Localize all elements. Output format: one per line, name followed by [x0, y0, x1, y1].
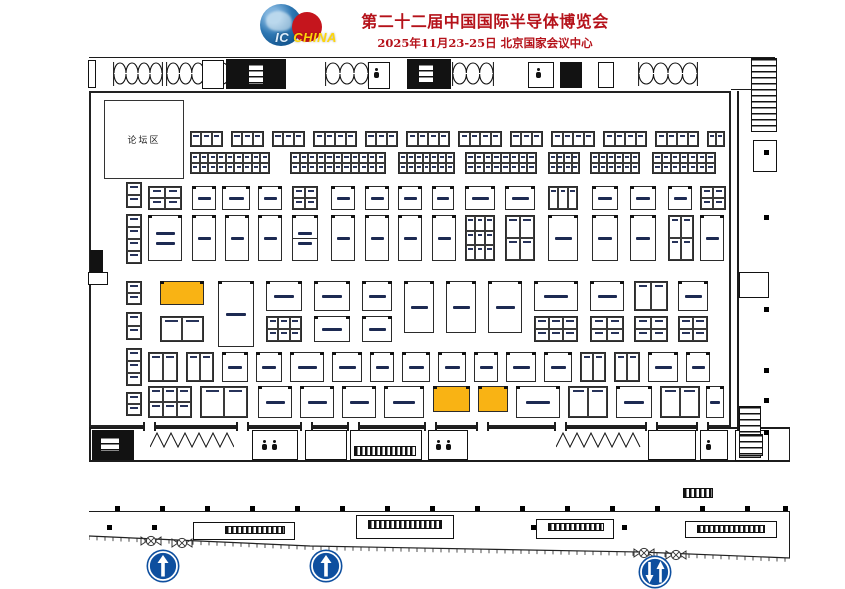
booth-cell [260, 163, 269, 173]
facility-room [739, 272, 769, 298]
booth [544, 352, 572, 382]
zigzag-barrier-icon [556, 432, 644, 449]
booth-cell [359, 163, 368, 173]
booth-cell [163, 387, 177, 402]
booth [592, 186, 618, 210]
booth-cell [351, 163, 360, 173]
booth [314, 316, 350, 342]
booth [648, 352, 678, 382]
booth-cell [127, 393, 141, 404]
booth [548, 215, 578, 261]
booth-cell [300, 153, 309, 163]
entrance-doors-icon [113, 60, 163, 88]
booth-cell [342, 163, 351, 173]
booth-cells [580, 352, 606, 382]
booth-cell [535, 317, 549, 329]
booth-cell [127, 326, 141, 339]
restroom-person-icon [446, 440, 451, 450]
outdoor-column [430, 506, 435, 511]
booth-cell [520, 216, 534, 238]
door-tick [554, 422, 556, 431]
booth [402, 352, 430, 382]
booth-cell [260, 153, 269, 163]
entrance-doors-icon [638, 60, 698, 88]
booth-cell [521, 132, 531, 146]
booth [506, 352, 536, 382]
booth-cell [127, 239, 141, 251]
booth-cell [506, 238, 520, 260]
booth-cell [680, 387, 699, 417]
outdoor-column [340, 506, 345, 511]
booth [222, 186, 250, 210]
booth-cell [334, 163, 343, 173]
outdoor-column [610, 506, 615, 511]
booth-cell [485, 216, 494, 231]
booth-cell [706, 153, 715, 163]
booth-cell [510, 153, 519, 163]
booth-cell [232, 132, 242, 146]
booth-cell [697, 163, 706, 173]
wall-strip-booths [126, 312, 142, 340]
booth [432, 186, 454, 210]
booth-label-text [551, 366, 566, 369]
booth [258, 386, 292, 418]
booth-label-text [156, 242, 175, 245]
booth-cell [149, 198, 165, 209]
outdoor-column [205, 506, 210, 511]
booth-cell [234, 153, 243, 163]
door-tick [487, 422, 489, 431]
booth-cell [563, 329, 577, 341]
booth-cell [252, 153, 261, 163]
booth-cell [662, 153, 671, 163]
booth-cell [635, 317, 651, 329]
booth [516, 386, 560, 418]
booth-cells [160, 316, 204, 342]
booth-cell [688, 163, 697, 173]
wall-strip-booths [126, 281, 142, 305]
booth-cell [466, 153, 475, 163]
booth-label-text [710, 401, 720, 404]
booth-cell [669, 216, 681, 238]
booth-label-text [438, 237, 451, 240]
hatched-platform [683, 488, 713, 498]
booth-label-text [371, 237, 384, 240]
wall-strip-booths [126, 182, 142, 208]
booth-cell [127, 215, 141, 227]
outdoor-column [745, 506, 750, 511]
booth [616, 386, 652, 418]
booth-cell [688, 153, 697, 163]
booth-cells [465, 152, 537, 174]
logo-text-china: CHINA [293, 30, 337, 45]
booth [678, 281, 708, 311]
booth [266, 281, 302, 311]
booth-label-text [411, 306, 428, 309]
facility-room [700, 430, 728, 460]
wall-line [89, 57, 775, 58]
wall-strip-booths [126, 392, 142, 416]
booth-cell [593, 353, 605, 381]
door-tick [347, 422, 349, 431]
hatched-platform [354, 446, 416, 456]
booth-cell [581, 353, 593, 381]
booth-cells [290, 152, 386, 174]
booth [706, 386, 724, 418]
booth-cell [680, 153, 689, 163]
booth-cell [212, 132, 222, 146]
booth-cell [475, 245, 484, 260]
facility-room [305, 430, 347, 460]
door-tick [311, 422, 313, 431]
booth-label-text [636, 197, 650, 200]
booth-cells [190, 152, 270, 174]
booth-cell [127, 183, 141, 195]
booth-cell [484, 163, 493, 173]
booth-cells [231, 131, 264, 147]
booth [258, 186, 282, 210]
booth-cell [485, 245, 494, 260]
booth-cells [668, 215, 694, 261]
booth-cell [520, 238, 534, 260]
forum-area-label: 论坛区 [127, 133, 160, 146]
booth-label-text [598, 197, 612, 200]
booth-cell [201, 387, 224, 417]
booth-cell [127, 293, 141, 304]
booth [365, 186, 389, 210]
stairs-icon [739, 434, 763, 456]
booth-cells [603, 131, 647, 147]
outdoor-column [783, 506, 788, 511]
booth-cell [165, 187, 181, 198]
booth-cell [519, 163, 528, 173]
booth [668, 186, 692, 210]
door-tick [143, 422, 145, 431]
booth-cell [669, 238, 681, 260]
booth-cell [376, 153, 385, 163]
ahead-only-sign [146, 549, 180, 583]
booth-cell [511, 132, 521, 146]
booth-label-text [322, 295, 342, 298]
booth-cell [491, 132, 502, 146]
booth-cell [651, 282, 667, 310]
door-tick [565, 422, 567, 431]
booth-cell [305, 198, 317, 209]
booth-cell [549, 329, 563, 341]
booth-cells [548, 152, 580, 174]
booth-cell [557, 163, 565, 173]
door-tick [300, 422, 302, 431]
booth-cells [186, 352, 214, 382]
booth-cell [588, 387, 607, 417]
booth-cell [599, 163, 607, 173]
booth [534, 281, 578, 311]
booth-label-text [598, 295, 617, 298]
outdoor-column [385, 506, 390, 511]
booth-label-text [156, 232, 175, 235]
booth-cells [200, 386, 248, 418]
booth-cell [165, 198, 181, 209]
structural-column [764, 215, 769, 220]
booth-cell [563, 317, 577, 329]
booth-label-text [350, 401, 369, 404]
booth-cell [697, 153, 706, 163]
booth [438, 352, 466, 382]
booth-cell [415, 163, 423, 173]
booth-cell [564, 153, 572, 163]
booth-cell [446, 153, 454, 163]
booth-cell [466, 245, 475, 260]
booth-cell [459, 132, 470, 146]
wall-line [89, 511, 790, 512]
booth-label-text [526, 401, 550, 404]
booth-cells [148, 352, 178, 382]
structural-column [764, 150, 769, 155]
booth-cells [700, 186, 726, 210]
booth-cell [290, 329, 301, 341]
booth-cell [519, 153, 528, 163]
booth-cell [127, 251, 141, 263]
stairs-icon [418, 63, 434, 83]
booth-cells [266, 316, 302, 342]
booth-cell [430, 153, 438, 163]
booth-cell [407, 153, 415, 163]
stair-core-block [560, 62, 582, 88]
door-tick [696, 422, 698, 431]
booth-cell [607, 329, 623, 341]
booth-cell [325, 163, 334, 173]
booth-label-text [198, 237, 211, 240]
booth-label-text [437, 197, 449, 200]
facility-room [368, 62, 390, 89]
booth [192, 186, 216, 210]
booth-label-text [369, 295, 386, 298]
booth-cell [278, 317, 289, 329]
booth-cell [243, 163, 252, 173]
booth-cell [283, 132, 293, 146]
booth-cell [359, 153, 368, 163]
booth-cell [208, 163, 217, 173]
booth-cells [272, 131, 305, 147]
entrance-doors-icon [325, 60, 369, 88]
door-tick [247, 422, 249, 431]
restroom-person-icon [262, 440, 267, 450]
booth-cell [294, 132, 304, 146]
booth-cell [591, 329, 607, 341]
booth-cell [127, 361, 141, 373]
booth [258, 215, 282, 261]
booth-label-text [308, 401, 327, 404]
booth-cell [527, 163, 536, 173]
booth-cell [273, 132, 283, 146]
booth-cell [376, 163, 385, 173]
wall-strip-booths [126, 214, 142, 264]
booth-cell [572, 163, 580, 173]
booth-label-text [369, 328, 386, 331]
structural-column [764, 368, 769, 373]
outdoor-column [115, 506, 120, 511]
booth-label-text [409, 366, 424, 369]
booth [225, 215, 249, 261]
booth-cell [625, 132, 636, 146]
booth-cell [308, 163, 317, 173]
booth-cell [267, 317, 278, 329]
booth-cell [706, 163, 715, 173]
booth-cell [635, 282, 651, 310]
booth-cell [127, 227, 141, 239]
facility-room [88, 60, 96, 88]
booth [218, 281, 254, 347]
expo-date-venue: 2025年11月23-25日 北京国家会议中心 [340, 35, 630, 51]
booth-cell [334, 153, 343, 163]
booth-cell [438, 163, 446, 173]
booth-cell [149, 353, 163, 381]
booth-cell [368, 163, 377, 173]
structural-column [764, 307, 769, 312]
facility-room [202, 60, 224, 89]
booth-cells [313, 131, 357, 147]
booth-label-text [404, 237, 417, 240]
booth-cell [623, 153, 631, 163]
booth-cell [423, 153, 431, 163]
booth-cell [568, 187, 577, 209]
booth-cells [678, 316, 708, 342]
booth-cell [708, 132, 716, 146]
booth-cell [470, 132, 481, 146]
booth-cell [127, 282, 141, 293]
booth-cell [661, 387, 680, 417]
booth-cell [466, 216, 475, 231]
booth-cell [242, 132, 252, 146]
booth-cell [291, 153, 300, 163]
booth-cell [407, 132, 418, 146]
booth-cell [127, 404, 141, 415]
booth-cell [415, 153, 423, 163]
booth [398, 215, 422, 261]
booth-cell [149, 387, 163, 402]
booth-cells [148, 386, 192, 418]
restroom-person-icon [536, 68, 541, 78]
outdoor-column [565, 506, 570, 511]
booth-cell [335, 132, 346, 146]
door-tick [424, 422, 426, 431]
booth-cell [651, 317, 667, 329]
entrance-doors-icon [452, 60, 494, 88]
booth-cell [475, 216, 484, 231]
booth-label-text [624, 401, 644, 404]
door-tick [707, 422, 709, 431]
booth-cell [290, 317, 301, 329]
booth-cell [252, 163, 261, 173]
booth-cells [551, 131, 595, 147]
booth-highlight [160, 281, 204, 305]
booth [700, 215, 724, 261]
booth-cell [501, 163, 510, 173]
booth-cell [308, 153, 317, 163]
booth-highlight [478, 386, 508, 412]
booth-cell [693, 317, 707, 329]
booth-cell [701, 187, 713, 198]
booth-cell [607, 163, 615, 173]
booth-cell [564, 163, 572, 173]
booth-label-text [264, 197, 277, 200]
booth-cell [177, 402, 191, 417]
booth-cells [660, 386, 700, 418]
booth-cell [713, 198, 725, 209]
booth-cell [484, 153, 493, 163]
booth [362, 281, 392, 311]
booth-label-text [544, 295, 568, 298]
booth-cell [325, 153, 334, 163]
expo-title: 第二十二届中国国际半导体博览会 [340, 8, 630, 32]
booth-cell [430, 163, 438, 173]
booth-cell [226, 153, 235, 163]
door-tick [358, 422, 360, 431]
booth-cell [418, 132, 429, 146]
door-tick [154, 422, 156, 431]
outdoor-column [250, 506, 255, 511]
booth-cell [217, 163, 226, 173]
restroom-person-icon [374, 68, 379, 78]
booth-cell [681, 238, 693, 260]
booth-cell [278, 329, 289, 341]
booth-label-text [339, 366, 356, 369]
booth-cells [292, 186, 318, 210]
booth [314, 281, 350, 311]
booth-cell [300, 163, 309, 173]
booth-cell [191, 153, 200, 163]
wall-line [89, 427, 790, 429]
booth-cells [534, 316, 578, 342]
booth-cell [376, 132, 386, 146]
booth-cell [177, 387, 191, 402]
booth-cell [716, 132, 724, 146]
booth-cell [351, 153, 360, 163]
booth [590, 281, 624, 311]
valve-icon [171, 536, 193, 550]
booth-cell [127, 373, 141, 385]
facility-room [528, 62, 554, 88]
outdoor-column [700, 506, 705, 511]
booth-label-text [636, 237, 650, 240]
booth-cell [558, 187, 567, 209]
booth-label-text [598, 237, 612, 240]
booth [465, 186, 495, 210]
booth-cell [466, 163, 475, 173]
booth [505, 186, 535, 210]
booth-cells [634, 281, 668, 311]
booth-cell [191, 132, 201, 146]
booth-cell [317, 163, 326, 173]
stairs-icon [751, 58, 777, 132]
booth-cell [532, 132, 542, 146]
booth-cell [342, 153, 351, 163]
booth-cell [604, 132, 615, 146]
booth-cell [549, 163, 557, 173]
booth-label-text [337, 197, 350, 200]
booth-cell [492, 153, 501, 163]
booth-cell [234, 163, 243, 173]
booth-cell [293, 198, 305, 209]
booth-cell [557, 153, 565, 163]
booth-cells [614, 352, 640, 382]
booth-cell [549, 187, 558, 209]
restroom-person-icon [272, 440, 277, 450]
booth-cell [407, 163, 415, 173]
expo-floorplan-page: IC CHINA 第二十二届中国国际半导体博览会 2025年11月23-25日 … [0, 0, 845, 589]
header: IC CHINA 第二十二届中国国际半导体博览会 2025年11月23-25日 … [0, 0, 845, 56]
booth-cell [615, 132, 626, 146]
